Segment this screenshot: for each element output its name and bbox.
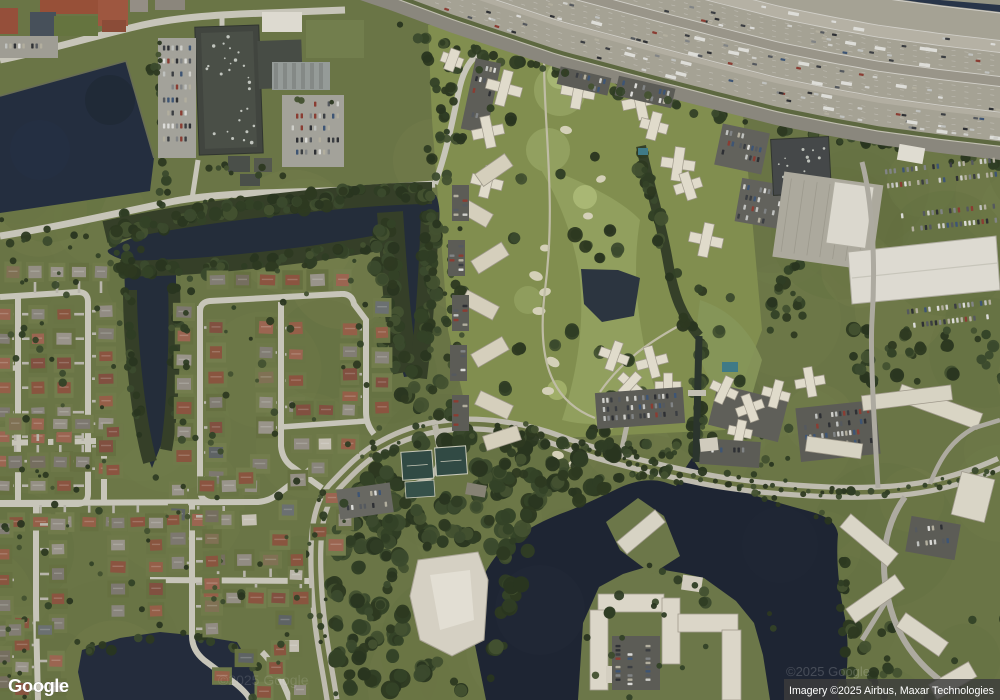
svg-text:©2025 Google: ©2025 Google	[218, 672, 309, 688]
svg-text:©2025 Google: ©2025 Google	[786, 664, 870, 679]
svg-text:Google: Google	[8, 675, 69, 696]
svg-text:Imagery ©2025 Airbus, Maxar Te: Imagery ©2025 Airbus, Maxar Technologies	[789, 685, 994, 697]
